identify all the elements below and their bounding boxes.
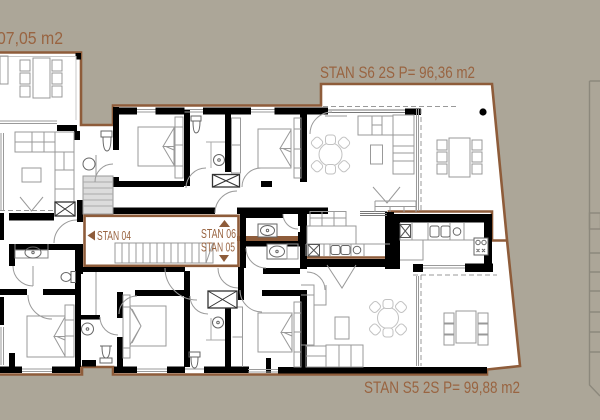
svg-text:STAN S6 2S P= 96,36 m2: STAN S6 2S P= 96,36 m2 [320,64,475,82]
svg-text:STAN 06: STAN 06 [201,227,236,241]
svg-text:STAN 05: STAN 05 [201,241,235,255]
svg-text:STAN S5 2S P= 99,88 m2: STAN S5 2S P= 99,88 m2 [364,379,520,397]
svg-text:STAN 04: STAN 04 [97,229,131,243]
svg-text:07,05 m2: 07,05 m2 [0,28,63,48]
